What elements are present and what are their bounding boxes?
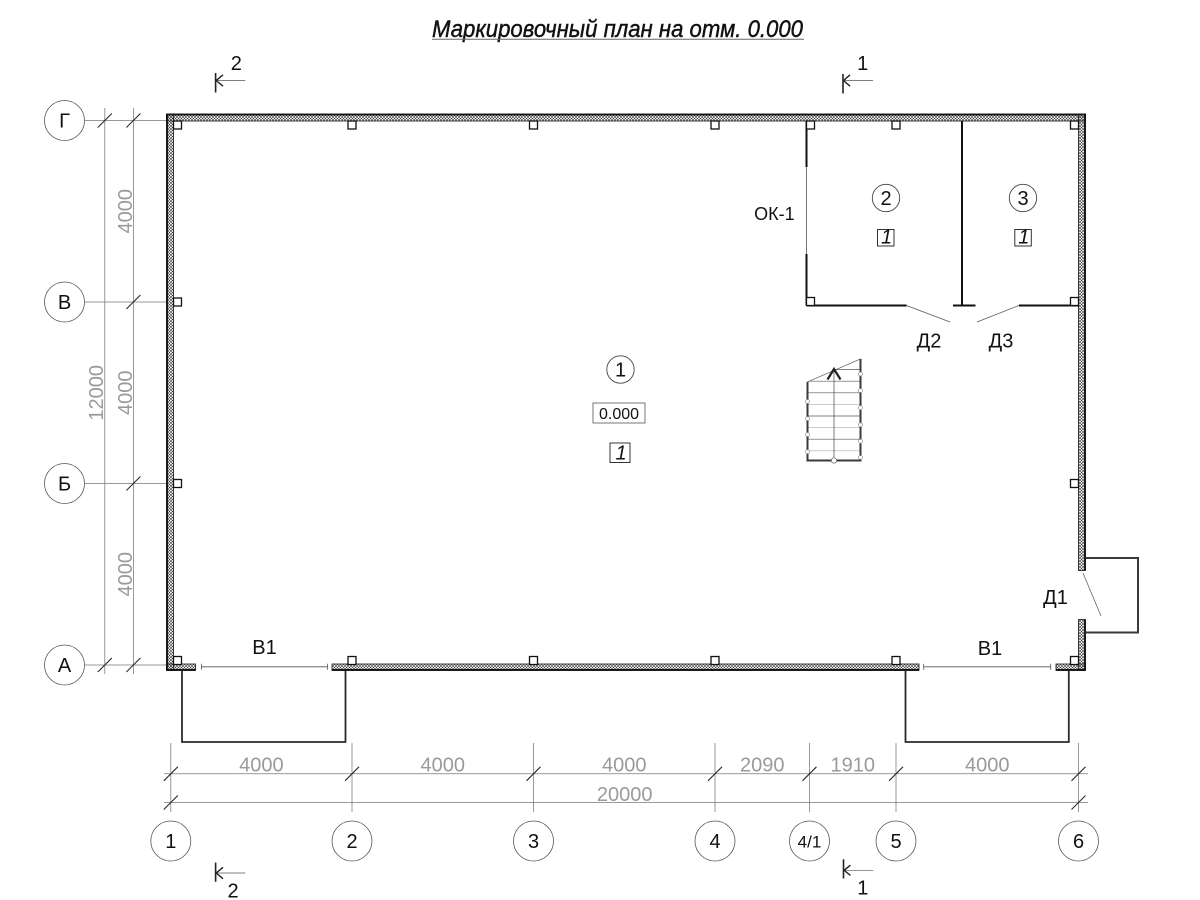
svg-text:3: 3 — [1017, 188, 1028, 210]
svg-text:В: В — [58, 292, 71, 314]
svg-text:1: 1 — [857, 53, 868, 75]
svg-text:4000: 4000 — [965, 754, 1010, 776]
svg-text:Д2: Д2 — [917, 331, 942, 353]
svg-text:2: 2 — [346, 831, 357, 853]
svg-text:4000: 4000 — [115, 371, 137, 416]
svg-text:В1: В1 — [252, 637, 276, 659]
svg-text:4/1: 4/1 — [798, 833, 822, 852]
svg-text:4000: 4000 — [421, 754, 466, 776]
svg-text:12000: 12000 — [86, 365, 108, 421]
svg-text:2: 2 — [231, 53, 242, 75]
svg-text:4000: 4000 — [239, 754, 284, 776]
svg-text:ОК-1: ОК-1 — [754, 204, 795, 224]
svg-text:6: 6 — [1073, 831, 1084, 853]
svg-text:20000: 20000 — [597, 784, 653, 806]
svg-text:Д1: Д1 — [1043, 587, 1068, 609]
svg-text:А: А — [58, 655, 72, 677]
svg-text:4000: 4000 — [115, 552, 137, 597]
svg-text:2: 2 — [227, 881, 238, 900]
svg-text:0.000: 0.000 — [599, 406, 639, 423]
svg-text:4000: 4000 — [115, 189, 137, 234]
svg-text:4: 4 — [709, 831, 720, 853]
svg-text:4000: 4000 — [602, 754, 647, 776]
svg-text:2090: 2090 — [740, 754, 785, 776]
svg-text:2: 2 — [880, 188, 891, 210]
svg-text:1: 1 — [615, 360, 626, 382]
svg-text:1910: 1910 — [831, 754, 876, 776]
svg-text:1: 1 — [857, 878, 868, 900]
svg-text:1: 1 — [615, 443, 626, 465]
svg-text:1: 1 — [881, 227, 892, 249]
svg-text:1: 1 — [1018, 227, 1029, 249]
svg-text:3: 3 — [528, 831, 539, 853]
svg-text:5: 5 — [890, 831, 901, 853]
svg-text:Д3: Д3 — [989, 331, 1014, 353]
svg-text:Г: Г — [59, 111, 70, 133]
svg-text:В1: В1 — [978, 638, 1002, 660]
svg-text:1: 1 — [165, 831, 176, 853]
svg-text:Б: Б — [58, 474, 71, 496]
